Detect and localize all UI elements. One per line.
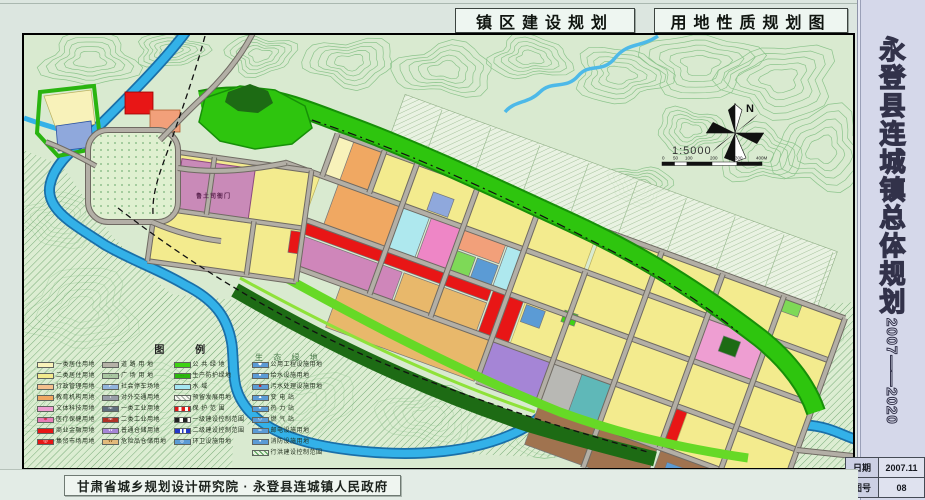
svg-text:100: 100	[685, 156, 693, 161]
legend-label: 给水设施用地	[271, 373, 310, 379]
legend-swatch: ◎	[37, 439, 54, 445]
legend-item: ⊕医疗保健用地	[37, 415, 95, 424]
legend-label: 热 力 站	[271, 406, 295, 412]
legend-item: 公 共 绿 地	[174, 360, 245, 369]
legend-label: 文体科技用地	[56, 406, 95, 412]
legend-swatch: P	[102, 384, 119, 390]
legend-label: 社会停车场地	[121, 384, 160, 390]
legend-swatch	[174, 362, 191, 368]
legend-swatch: M	[102, 417, 119, 423]
legend-swatch	[37, 428, 54, 434]
svg-text:鲁土司衙门: 鲁土司衙门	[196, 192, 231, 200]
legend-swatch	[174, 428, 191, 434]
legend-swatch	[174, 406, 191, 412]
legend-label: 二类居住用地	[56, 373, 95, 379]
legend-label: 预留发展用地	[193, 395, 232, 401]
svg-text:N: N	[746, 103, 754, 115]
legend-swatch: ∴	[174, 373, 191, 379]
legend-label: 消防设施用地	[271, 439, 310, 445]
legend-item: P社会停车场地	[102, 382, 167, 391]
legend-item: 道 路 用 地	[102, 360, 167, 369]
legend-label: 环卫设施用地	[193, 439, 232, 445]
legend-item: 水 域	[174, 382, 245, 391]
plan-title-vertical: 永登县连城镇总体规划	[873, 36, 910, 316]
legend-label: 道 路 用 地	[121, 362, 154, 368]
legend-item: ◆公用工程设施用地	[252, 360, 323, 369]
legend-swatch: ▲	[252, 395, 269, 401]
legend-label: 行洪建设控制范围	[271, 450, 323, 456]
legend-label: 二级建设控制范围	[193, 428, 245, 434]
legend-label: 对外交通用地	[121, 395, 160, 401]
legend-label: 教育机构用地	[56, 395, 95, 401]
legend-swatch	[37, 373, 54, 379]
legend-item: ●给水设施用地	[252, 371, 323, 380]
svg-text:300: 300	[735, 156, 743, 161]
legend-item: 一类居住用地	[37, 360, 95, 369]
legend-label: 医疗保健用地	[56, 417, 95, 423]
legend-label: 危险品仓储用地	[121, 439, 167, 445]
legend-item: ▼消防设施用地	[252, 437, 323, 446]
legend-item: 文体科技用地	[37, 404, 95, 413]
legend-item: 一级建设控制范围	[174, 415, 245, 424]
legend-label: 普通仓储用地	[121, 428, 160, 434]
legend-swatch	[174, 417, 191, 423]
legend-label: 行政管理用地	[56, 384, 95, 390]
date-value: 2007.11	[879, 458, 925, 478]
sheet-number-value: 08	[879, 478, 925, 498]
legend-swatch	[37, 406, 54, 412]
sheet-title-right: 用地性质规划图	[654, 8, 848, 33]
legend-label: 邮电设施用地	[271, 428, 310, 434]
map-legend: 图 例 一类居住用地二类居住用地行政管理用地教育机构用地文体科技用地⊕医疗保健用…	[37, 341, 323, 457]
legend-item: T对外交通用地	[102, 393, 167, 402]
legend-item: ∴生产防护绿地	[174, 371, 245, 380]
legend-swatch: ◆	[252, 362, 269, 368]
legend-swatch: ⊕	[37, 417, 54, 423]
legend-item: ■污水处理设施用地	[252, 382, 323, 391]
planning-map: 鲁土司衙门生 态 绿 地 N1:5000050100200300400M 图 例…	[22, 33, 855, 470]
legend-swatch: ☏	[252, 428, 269, 434]
sheet-title-right-text: 用地性质规划图	[670, 9, 831, 33]
legend-item: ★热 力 站	[252, 404, 323, 413]
plan-sheet: 镇区建设规划 用地性质规划图 鲁土司衙门生 态 绿 地 N1:500005010…	[0, 0, 925, 500]
legend-column: 公 共 绿 地∴生产防护绿地水 域预留发展用地保 护 范 围一级建设控制范围二级…	[174, 360, 245, 446]
legend-label: 燃 气 站	[271, 417, 295, 423]
legend-label: 水 域	[193, 384, 208, 390]
legend-swatch: W	[102, 439, 119, 445]
svg-text:50: 50	[673, 156, 679, 161]
legend-item: ▲变 电 站	[252, 393, 323, 402]
legend-label: 二类工业用地	[121, 417, 160, 423]
legend-label: 一级建设控制范围	[193, 417, 245, 423]
legend-label: 保 护 范 围	[193, 406, 226, 412]
legend-swatch: ★	[252, 406, 269, 412]
legend-column: ◆公用工程设施用地●给水设施用地■污水处理设施用地▲变 电 站★热 力 站◇燃 …	[252, 360, 323, 457]
legend-swatch	[37, 384, 54, 390]
legend-item: M二类工业用地	[102, 415, 167, 424]
legend-item: 行洪建设控制范围	[252, 448, 323, 457]
legend-item: ◎集贸市场用地	[37, 437, 95, 446]
svg-text:200: 200	[710, 156, 718, 161]
plan-years-vertical: 2007——2020	[883, 318, 900, 425]
legend-label: 一类工业用地	[121, 406, 160, 412]
legend-item: 行政管理用地	[37, 382, 95, 391]
legend-swatch: M	[102, 406, 119, 412]
legend-swatch: ◎	[174, 439, 191, 445]
legend-item: ◇燃 气 站	[252, 415, 323, 424]
legend-swatch: ◇	[252, 417, 269, 423]
legend-item: 保 护 范 围	[174, 404, 245, 413]
legend-swatch: ∷	[102, 373, 119, 379]
legend-item: 预留发展用地	[174, 393, 245, 402]
legend-swatch: ■	[252, 384, 269, 390]
legend-label: 商业金融用地	[56, 428, 95, 434]
legend-label: 生产防护绿地	[193, 373, 232, 379]
legend-column: 道 路 用 地∷广 场 用 地P社会停车场地T对外交通用地M一类工业用地M二类工…	[102, 360, 167, 446]
legend-swatch	[37, 395, 54, 401]
legend-label: 集贸市场用地	[56, 439, 95, 445]
legend-swatch	[37, 362, 54, 368]
legend-item: ∷广 场 用 地	[102, 371, 167, 380]
legend-swatch: ●	[252, 373, 269, 379]
legend-label: 公用工程设施用地	[271, 362, 323, 368]
legend-swatch	[252, 450, 269, 456]
legend-label: 广 场 用 地	[121, 373, 154, 379]
legend-item: 二类居住用地	[37, 371, 95, 380]
legend-swatch	[174, 395, 191, 401]
legend-label: 公 共 绿 地	[193, 362, 226, 368]
legend-item: 二级建设控制范围	[174, 426, 245, 435]
legend-columns: 一类居住用地二类居住用地行政管理用地教育机构用地文体科技用地⊕医疗保健用地商业金…	[37, 360, 323, 457]
legend-label: 变 电 站	[271, 395, 295, 401]
legend-swatch: ▼	[252, 439, 269, 445]
sheet-title-left: 镇区建设规划	[455, 8, 635, 33]
legend-swatch: W	[102, 428, 119, 434]
legend-item: ☏邮电设施用地	[252, 426, 323, 435]
legend-item: M一类工业用地	[102, 404, 167, 413]
legend-swatch	[102, 362, 119, 368]
legend-title: 图 例	[37, 341, 323, 356]
sheet-title-left-text: 镇区建设规划	[476, 9, 614, 33]
top-divider	[0, 3, 925, 4]
legend-item: ◎环卫设施用地	[174, 437, 245, 446]
footer-strip: 甘肃省城乡规划设计研究院 · 永登县连城镇人民政府	[0, 469, 858, 500]
legend-item: W危险品仓储用地	[102, 437, 167, 446]
svg-text:400M: 400M	[756, 156, 768, 161]
agency-credit: 甘肃省城乡规划设计研究院 · 永登县连城镇人民政府	[64, 475, 401, 496]
legend-column: 一类居住用地二类居住用地行政管理用地教育机构用地文体科技用地⊕医疗保健用地商业金…	[37, 360, 95, 446]
legend-item: 教育机构用地	[37, 393, 95, 402]
legend-swatch: T	[102, 395, 119, 401]
title-sidebar: 永登县连城镇总体规划 2007——2020	[857, 0, 925, 500]
legend-item: 商业金融用地	[37, 426, 95, 435]
legend-swatch	[174, 384, 191, 390]
legend-label: 污水处理设施用地	[271, 384, 323, 390]
legend-item: W普通仓储用地	[102, 426, 167, 435]
legend-label: 一类居住用地	[56, 362, 95, 368]
